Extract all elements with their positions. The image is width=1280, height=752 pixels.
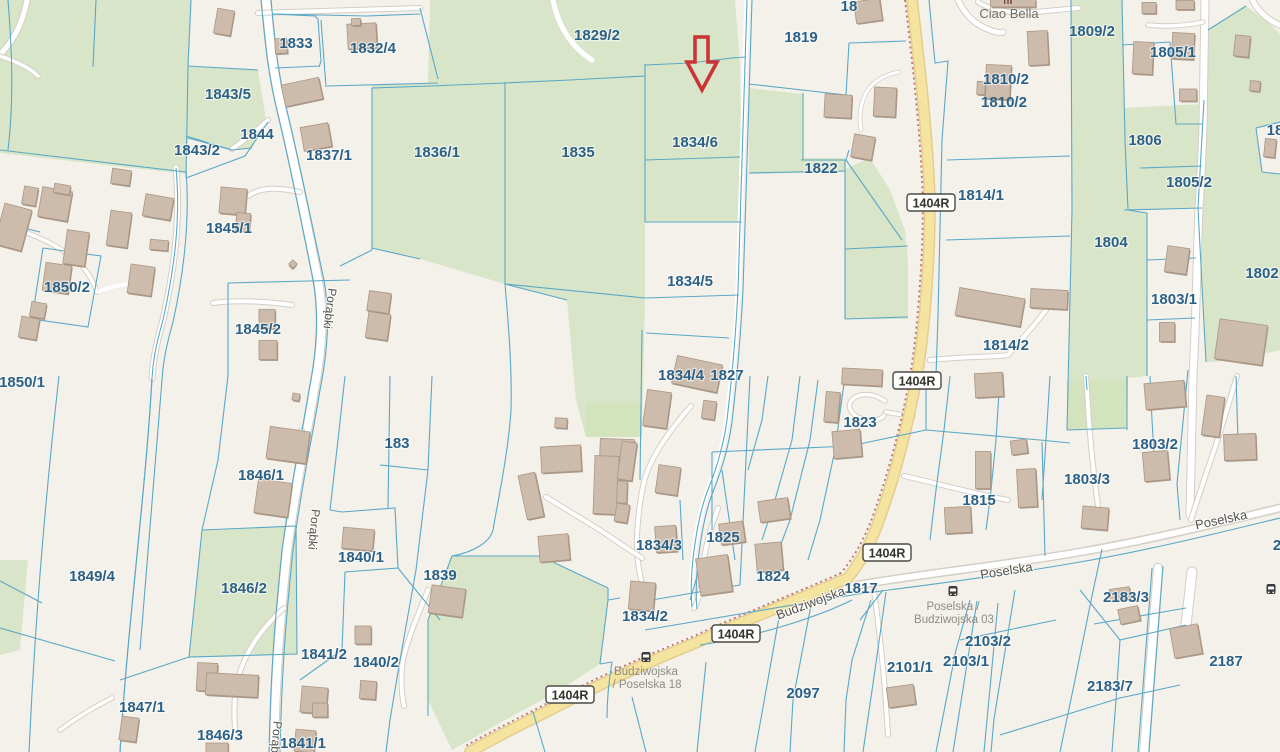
svg-text:1803/1: 1803/1 xyxy=(1151,291,1197,308)
svg-text:1834/6: 1834/6 xyxy=(672,134,718,151)
svg-text:1823: 1823 xyxy=(843,414,876,431)
svg-text:2183/7: 2183/7 xyxy=(1087,678,1133,695)
svg-text:1814/1: 1814/1 xyxy=(958,187,1004,204)
svg-text:1404R: 1404R xyxy=(899,375,936,389)
svg-text:2: 2 xyxy=(1273,537,1280,554)
svg-text:2097: 2097 xyxy=(786,685,819,702)
svg-text:1822: 1822 xyxy=(804,160,837,177)
svg-text:1846/1: 1846/1 xyxy=(238,467,284,484)
svg-text:18: 18 xyxy=(1267,122,1280,139)
svg-text:1827: 1827 xyxy=(710,367,743,384)
svg-text:1824: 1824 xyxy=(756,568,790,585)
svg-text:Ciao Bella: Ciao Bella xyxy=(979,6,1039,21)
svg-text:1803/3: 1803/3 xyxy=(1064,471,1110,488)
svg-text:1845/1: 1845/1 xyxy=(206,220,252,237)
svg-text:1843/2: 1843/2 xyxy=(174,142,220,159)
svg-text:1839: 1839 xyxy=(423,567,456,584)
svg-text:1814/2: 1814/2 xyxy=(983,337,1029,354)
svg-text:1804: 1804 xyxy=(1094,234,1128,251)
svg-text:2183/3: 2183/3 xyxy=(1103,589,1149,606)
svg-text:183: 183 xyxy=(384,435,409,452)
svg-text:1835: 1835 xyxy=(561,144,594,161)
svg-text:1404R: 1404R xyxy=(552,689,589,703)
svg-text:1840/2: 1840/2 xyxy=(353,654,399,671)
svg-text:1817: 1817 xyxy=(844,580,877,597)
svg-text:1832/4: 1832/4 xyxy=(350,40,397,57)
svg-text:1803/2: 1803/2 xyxy=(1132,436,1178,453)
svg-text:2187: 2187 xyxy=(1209,653,1242,670)
svg-text:1849/4: 1849/4 xyxy=(69,568,116,585)
svg-text:2103/2: 2103/2 xyxy=(965,633,1011,650)
svg-text:1805/2: 1805/2 xyxy=(1166,174,1212,191)
svg-text:1404R: 1404R xyxy=(913,197,950,211)
svg-text:2103/1: 2103/1 xyxy=(943,653,989,670)
svg-text:1809/2: 1809/2 xyxy=(1069,23,1115,40)
svg-text:1850/2: 1850/2 xyxy=(44,279,90,296)
svg-text:1834/3: 1834/3 xyxy=(636,537,682,554)
svg-text:1810/2: 1810/2 xyxy=(981,94,1027,111)
svg-text:1834/4: 1834/4 xyxy=(658,367,705,384)
svg-text:1846/3: 1846/3 xyxy=(197,727,243,744)
svg-text:1845/2: 1845/2 xyxy=(235,321,281,338)
svg-text:1834/2: 1834/2 xyxy=(622,608,668,625)
svg-text:1836/1: 1836/1 xyxy=(414,144,460,161)
svg-text:1829/2: 1829/2 xyxy=(574,27,620,44)
svg-text:Budziwojska: Budziwojska xyxy=(614,666,679,678)
svg-text:2101/1: 2101/1 xyxy=(887,659,933,676)
svg-text:1847/1: 1847/1 xyxy=(119,699,165,716)
svg-text:1805/1: 1805/1 xyxy=(1150,44,1196,61)
svg-text:1846/2: 1846/2 xyxy=(221,580,267,597)
svg-text:1850/1: 1850/1 xyxy=(0,374,45,391)
svg-text:1806: 1806 xyxy=(1128,132,1161,149)
svg-text:Poselska /: Poselska / xyxy=(926,601,980,613)
svg-text:1837/1: 1837/1 xyxy=(306,147,352,164)
svg-text:18: 18 xyxy=(841,0,858,15)
svg-text:1833: 1833 xyxy=(279,35,312,52)
svg-text:1825: 1825 xyxy=(706,529,739,546)
svg-text:1815: 1815 xyxy=(962,492,995,509)
svg-text:1802: 1802 xyxy=(1245,265,1278,282)
svg-text:1810/2: 1810/2 xyxy=(983,71,1029,88)
svg-text:/ Poselska 18: / Poselska 18 xyxy=(612,679,681,691)
svg-text:1844: 1844 xyxy=(240,126,274,143)
svg-text:1840/1: 1840/1 xyxy=(338,549,384,566)
svg-text:1404R: 1404R xyxy=(869,547,906,561)
svg-text:1841/1: 1841/1 xyxy=(280,735,326,752)
svg-text:1841/2: 1841/2 xyxy=(301,646,347,663)
svg-text:1843/5: 1843/5 xyxy=(205,86,251,103)
svg-text:1404R: 1404R xyxy=(718,628,755,642)
svg-text:1819: 1819 xyxy=(784,29,817,46)
svg-text:1834/5: 1834/5 xyxy=(667,273,713,290)
svg-text:Budziwojska 03: Budziwojska 03 xyxy=(914,614,994,626)
